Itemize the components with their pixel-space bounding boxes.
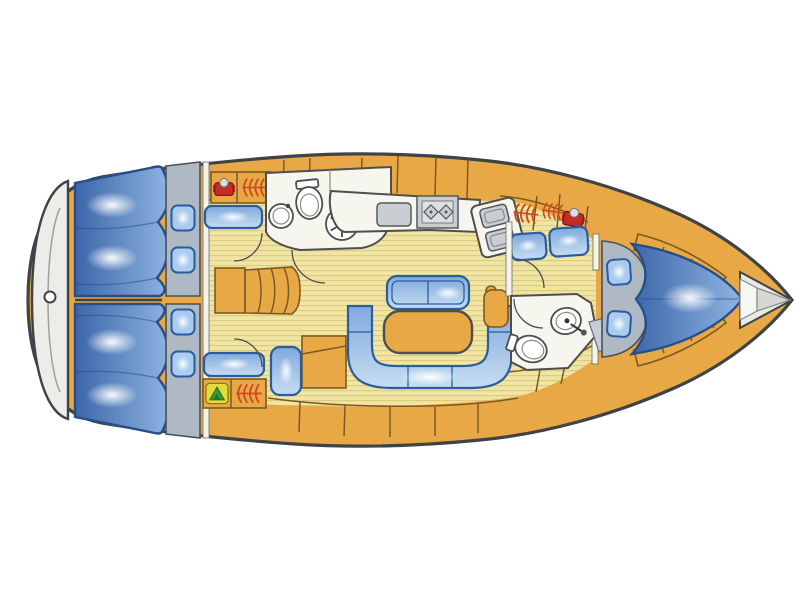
pillow [172,248,195,273]
fridge [377,203,411,226]
pillow [607,311,632,338]
aft-cabin-starboard [75,304,200,438]
double-berth [75,304,169,434]
side-seat [484,286,508,327]
companionway [215,267,300,314]
chart-table [302,336,346,388]
boat-floor-plan [0,0,800,600]
rudder-fitting-icon [45,292,56,303]
pillow [172,352,195,377]
boat-floor-plan-stage [0,0,800,600]
pillow [607,259,632,286]
salon-table [384,311,472,353]
galley-bulkhead-wall [506,222,512,296]
stove [417,196,458,228]
washbasin [269,204,293,228]
aft-starboard-lockers [203,379,266,408]
vberth-bulkhead-wall [593,234,599,270]
double-berth [75,167,169,297]
straight-settee [387,276,469,309]
pillow [172,310,195,335]
aft-port-lockers [211,172,271,203]
pillow [172,206,195,231]
aft-cabin-port [75,162,200,296]
yellow-green-locker-icon [206,383,228,403]
stern-platform [32,181,68,419]
